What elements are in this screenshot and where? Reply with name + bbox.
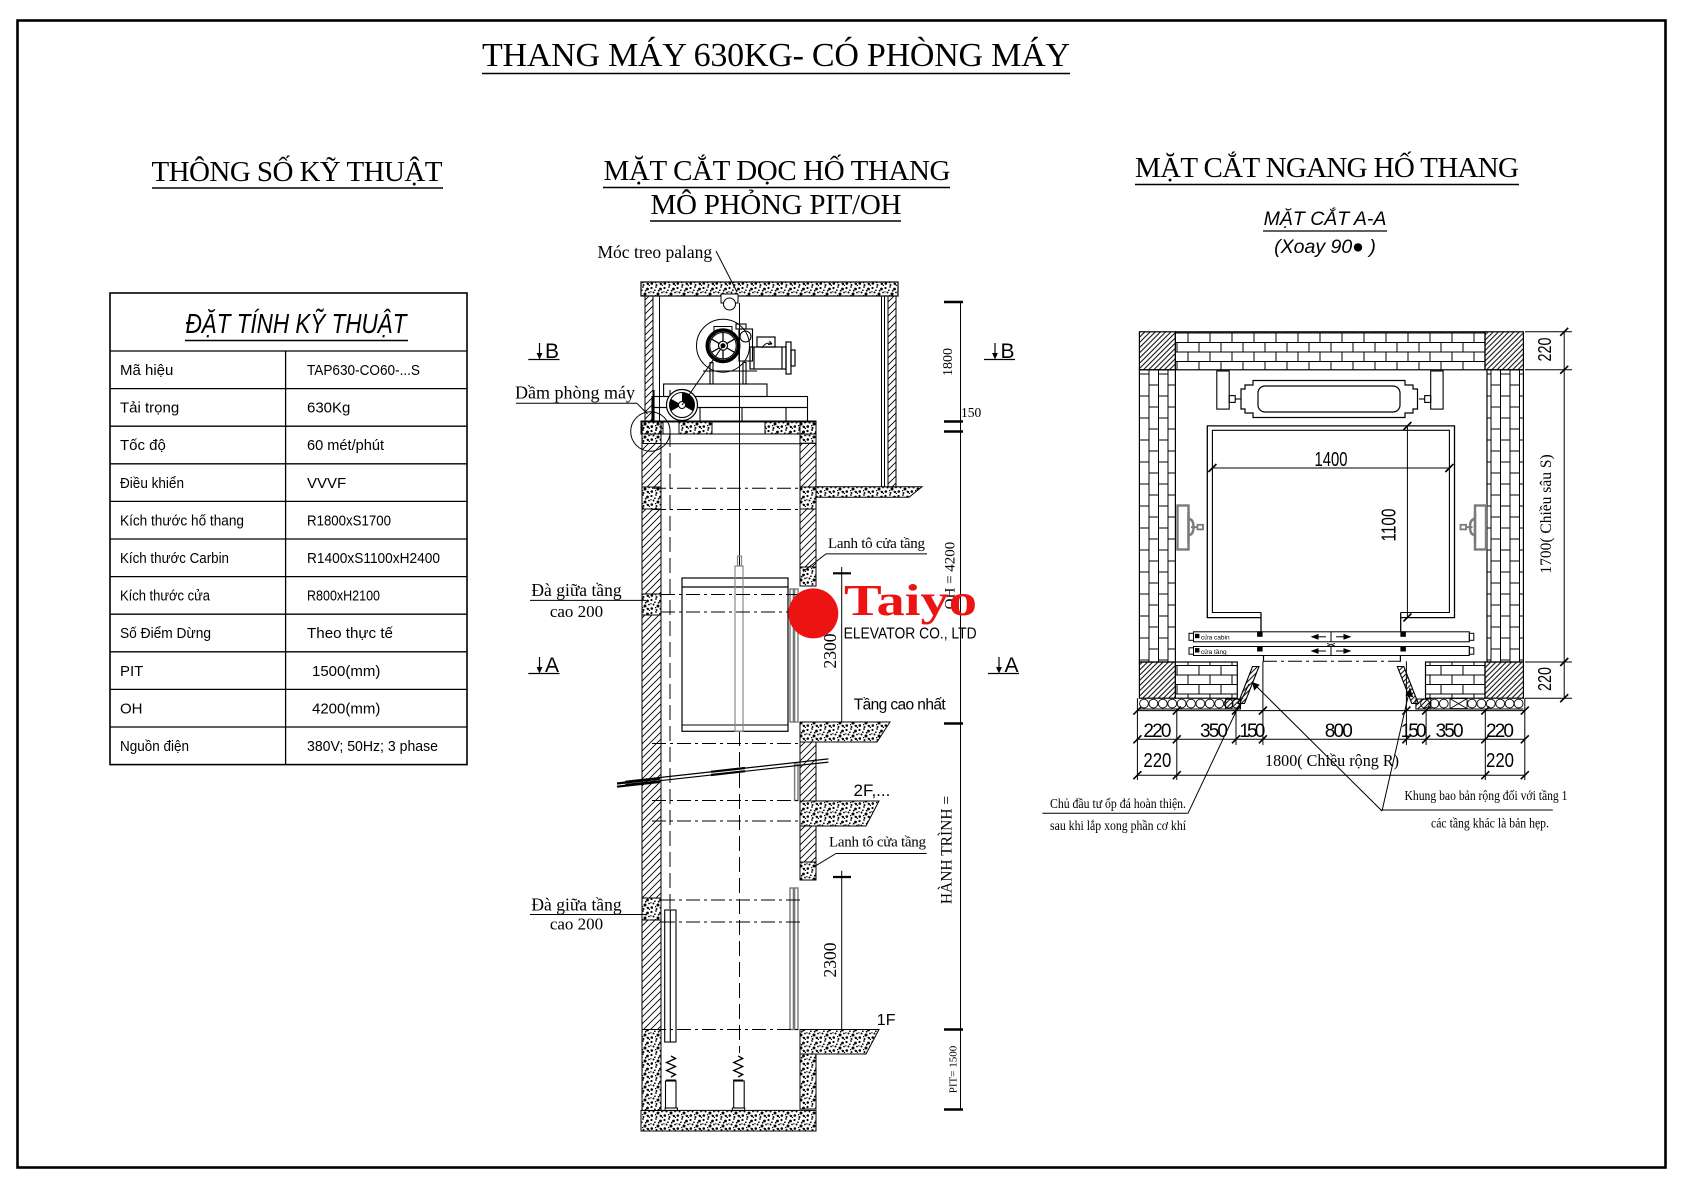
svg-text:cửa cabin: cửa cabin: [1201, 634, 1230, 642]
svg-text:2300: 2300: [820, 633, 840, 668]
svg-text:VVVF: VVVF: [307, 475, 346, 492]
svg-text:MÔ PHỎNG PIT/OH: MÔ PHỎNG PIT/OH: [651, 188, 902, 221]
svg-text:220: 220: [1486, 721, 1514, 742]
svg-text:A: A: [1005, 654, 1019, 677]
svg-text:Điều khiển: Điều khiển: [120, 475, 184, 492]
svg-text:cửa tầng: cửa tầng: [1201, 647, 1227, 656]
svg-text:cao 200: cao 200: [550, 602, 603, 621]
svg-text:220: 220: [1143, 721, 1171, 742]
svg-text:220: 220: [1486, 750, 1514, 772]
svg-text:2300: 2300: [820, 942, 840, 977]
svg-text:(Xoay 90● ): (Xoay 90● ): [1274, 236, 1376, 258]
svg-text:R1800xS1700: R1800xS1700: [307, 512, 391, 529]
svg-text:350: 350: [1436, 721, 1464, 742]
svg-text:PIT= 1500: PIT= 1500: [948, 1045, 960, 1093]
svg-text:ĐẶT TÍNH KỸ THUẬT: ĐẶT TÍNH KỸ THUẬT: [186, 308, 409, 339]
svg-text:sau khi lắp xong phần cơ khí: sau khi lắp xong phần cơ khí: [1050, 818, 1186, 833]
svg-text:Dầm phòng máy: Dầm phòng máy: [515, 383, 635, 403]
svg-text:cao 200: cao 200: [550, 915, 603, 934]
svg-text:Taiyo: Taiyo: [844, 576, 977, 625]
svg-text:B: B: [545, 340, 559, 363]
svg-text:HÀNH TRÌNH =: HÀNH TRÌNH =: [939, 796, 956, 904]
svg-text:Số Điểm Dừng: Số Điểm Dừng: [120, 625, 211, 642]
svg-text:1100: 1100: [1379, 509, 1401, 542]
svg-text:Kích thước cửa: Kích thước cửa: [120, 588, 211, 605]
svg-text:Chủ đầu tư ốp đá hoàn thiện.: Chủ đầu tư ốp đá hoàn thiện.: [1050, 796, 1186, 811]
svg-text:Nguồn điện: Nguồn điện: [120, 738, 189, 755]
svg-text:1500(mm): 1500(mm): [312, 663, 380, 680]
svg-text:B: B: [1001, 340, 1015, 363]
svg-text:Đà giữa tầng: Đà giữa tầng: [531, 895, 621, 915]
svg-text:380V; 50Hz; 3 phase: 380V; 50Hz; 3 phase: [307, 738, 438, 755]
svg-text:MẶT CẮT NGANG HỐ THANG: MẶT CẮT NGANG HỐ THANG: [1135, 150, 1519, 184]
svg-text:THÔNG SỐ KỸ THUẬT: THÔNG SỐ KỸ THUẬT: [152, 154, 443, 188]
svg-text:1800( Chiều rộng R): 1800( Chiều rộng R): [1265, 751, 1399, 770]
svg-text:Theo thực tế: Theo thực tế: [307, 625, 394, 642]
svg-text:Tốc độ: Tốc độ: [120, 437, 166, 454]
svg-text:2F,...: 2F,...: [854, 781, 891, 800]
svg-text:TAP630-CO60-...S: TAP630-CO60-...S: [307, 362, 420, 379]
svg-text:150: 150: [961, 405, 982, 420]
svg-text:220: 220: [1535, 667, 1555, 691]
svg-text:các tầng khác là bản hẹp.: các tầng khác là bản hẹp.: [1431, 815, 1549, 830]
svg-text:800: 800: [1325, 721, 1353, 742]
svg-text:350: 350: [1200, 721, 1228, 742]
svg-text:MẶT CẮT A-A: MẶT CẮT A-A: [1264, 206, 1387, 230]
svg-text:ELEVATOR CO., LTD: ELEVATOR CO., LTD: [844, 626, 977, 643]
svg-text:OH: OH: [120, 700, 143, 717]
svg-text:Kích thước hố thang: Kích thước hố thang: [120, 512, 244, 529]
svg-text:Kích thước Carbin: Kích thước Carbin: [120, 550, 229, 567]
svg-text:PIT: PIT: [120, 663, 143, 680]
svg-text:220: 220: [1143, 750, 1171, 772]
svg-text:4200(mm): 4200(mm): [312, 700, 380, 717]
svg-text:Mã hiệu: Mã hiệu: [120, 362, 173, 379]
svg-text:Đà giữa tầng: Đà giữa tầng: [531, 580, 621, 600]
svg-text:630Kg: 630Kg: [307, 400, 350, 417]
svg-text:MẶT CẮT DỌC HỐ THANG: MẶT CẮT DỌC HỐ THANG: [604, 153, 951, 187]
svg-text:Lanh tô cửa tầng: Lanh tô cửa tầng: [829, 835, 927, 851]
svg-text:R800xH2100: R800xH2100: [307, 588, 380, 605]
svg-text:1400: 1400: [1315, 449, 1348, 471]
svg-text:1700( Chiều sâu S): 1700( Chiều sâu S): [1538, 454, 1555, 573]
svg-text:60 mét/phút: 60 mét/phút: [307, 437, 385, 454]
svg-text:1800: 1800: [941, 348, 956, 376]
svg-text:150: 150: [1239, 721, 1265, 742]
svg-text:Tầng cao nhất: Tầng cao nhất: [854, 697, 947, 714]
svg-text:Lanh tô cửa tầng: Lanh tô cửa tầng: [828, 536, 926, 552]
svg-text:Móc treo palang: Móc treo palang: [598, 242, 713, 262]
svg-text:1F: 1F: [877, 1012, 896, 1029]
svg-text:R1400xS1100xH2400: R1400xS1100xH2400: [307, 550, 440, 567]
svg-text:Tải trọng: Tải trọng: [120, 400, 179, 417]
svg-text:Khung bao bản rộng đối với tần: Khung bao bản rộng đối với tầng 1: [1405, 788, 1568, 803]
svg-text:A: A: [545, 654, 559, 677]
svg-text:220: 220: [1535, 338, 1555, 362]
svg-text:THANG MÁY 630KG- CÓ PHÒNG MÁY: THANG MÁY 630KG- CÓ PHÒNG MÁY: [482, 36, 1070, 74]
svg-text:150: 150: [1401, 721, 1427, 742]
